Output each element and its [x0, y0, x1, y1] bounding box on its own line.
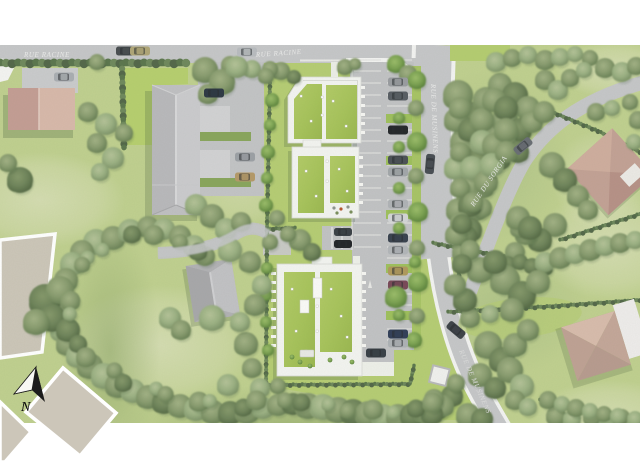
svg-text:N: N — [20, 400, 31, 415]
